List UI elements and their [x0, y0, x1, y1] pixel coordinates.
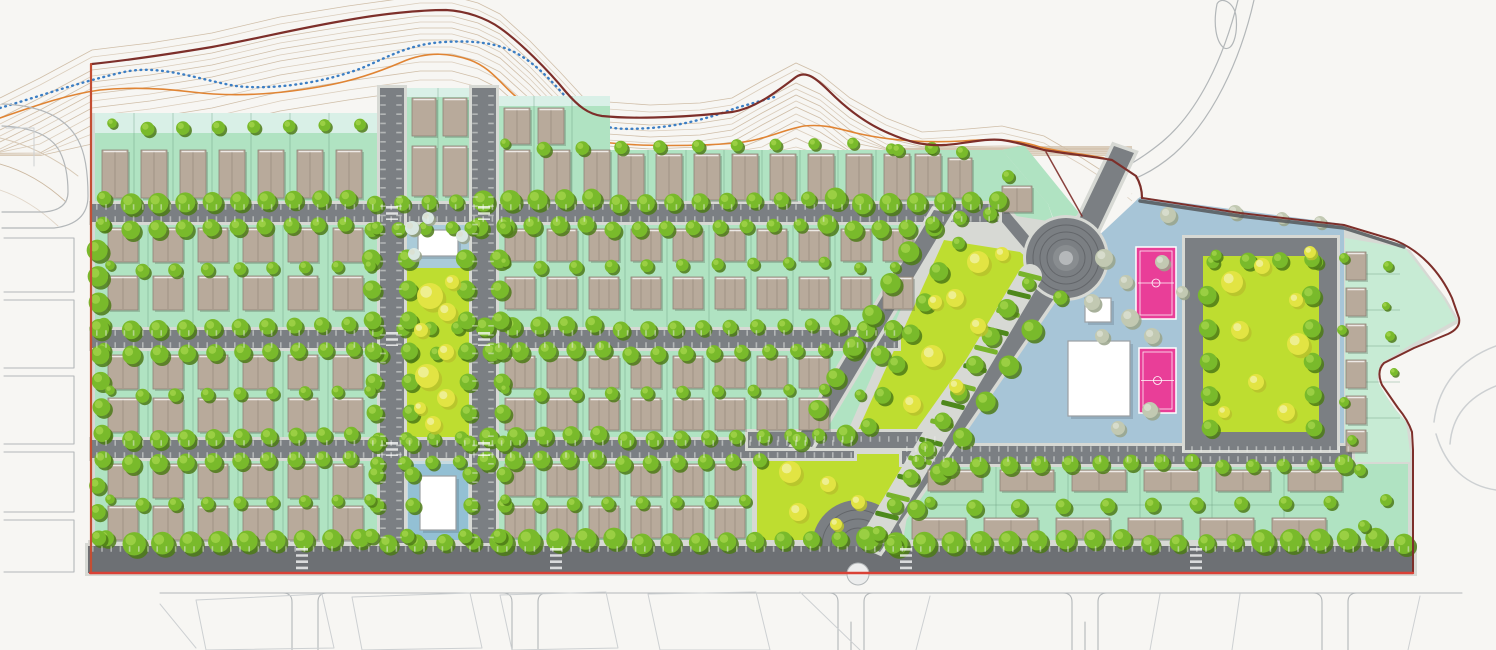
tree-highlight — [970, 254, 980, 264]
tree-highlight — [1204, 422, 1212, 430]
tree-highlight — [889, 499, 896, 506]
tree-highlight — [458, 252, 466, 260]
tree-highlight — [936, 414, 944, 422]
tree-highlight — [571, 262, 577, 268]
tree-highlight — [731, 431, 738, 438]
tree-highlight — [485, 345, 493, 353]
tree-highlight — [1172, 536, 1180, 544]
house-building — [715, 277, 745, 309]
tree-highlight — [92, 506, 99, 513]
tree-highlight — [580, 218, 588, 226]
tree-highlight — [930, 297, 936, 303]
tree-highlight — [285, 220, 292, 227]
tree-highlight — [287, 193, 295, 201]
tree-highlight — [927, 218, 933, 224]
tree-highlight — [1064, 458, 1072, 466]
tree-highlight — [901, 244, 910, 253]
house-building — [547, 398, 577, 430]
tree-highlight — [779, 320, 785, 326]
site-plan-viewport — [0, 0, 1496, 650]
tree-highlight — [607, 223, 614, 230]
tree-highlight — [509, 429, 517, 437]
tree-highlight — [402, 530, 408, 536]
tree-highlight — [235, 431, 243, 439]
tree-highlight — [366, 314, 374, 322]
tree-highlight — [831, 317, 840, 326]
tree-highlight — [152, 322, 160, 330]
tree-highlight — [353, 531, 361, 539]
tree-highlight — [1125, 457, 1132, 464]
tree-highlight — [891, 263, 896, 268]
tree-highlight — [732, 141, 738, 147]
house-building — [799, 277, 829, 309]
tree-highlight — [1178, 287, 1183, 292]
tree-highlight — [803, 193, 810, 200]
tree-highlight — [964, 194, 972, 202]
tree-highlight — [1306, 247, 1311, 252]
tree-highlight — [249, 122, 255, 128]
tree-highlight — [706, 497, 712, 503]
tree-highlight — [786, 430, 792, 436]
tree-highlight — [1004, 171, 1009, 176]
tree-highlight — [206, 321, 214, 329]
tree-highlight — [533, 319, 541, 327]
tree-highlight — [822, 478, 829, 485]
tree-highlight — [675, 432, 682, 439]
tree-highlight — [1147, 499, 1154, 506]
tree-highlight — [207, 431, 215, 439]
tree-highlight — [208, 346, 216, 354]
tree-highlight — [755, 455, 761, 461]
tree-highlight — [170, 390, 176, 396]
tree-highlight — [932, 264, 940, 272]
tree-highlight — [1097, 331, 1103, 337]
tree-highlight — [1391, 369, 1395, 373]
tree-highlight — [1383, 303, 1387, 307]
tree-highlight — [697, 322, 704, 329]
tree-highlight — [234, 321, 242, 329]
house-building — [757, 277, 787, 309]
tree-highlight — [714, 221, 721, 228]
tree-highlight — [263, 430, 270, 437]
tree-highlight — [856, 391, 861, 396]
tree-highlight — [207, 455, 215, 463]
tree-highlight — [1339, 531, 1349, 541]
tree-highlight — [318, 429, 325, 436]
tree-highlight — [535, 389, 541, 395]
tree-highlight — [873, 528, 880, 535]
tree-highlight — [624, 348, 631, 355]
tree-highlight — [958, 147, 963, 152]
tree-highlight — [820, 258, 825, 263]
tree-highlight — [239, 533, 248, 542]
tree-highlight — [91, 295, 100, 304]
tree-highlight — [236, 346, 244, 354]
tree-highlight — [1086, 296, 1093, 303]
tree-highlight — [1220, 407, 1225, 412]
tree-highlight — [365, 283, 373, 291]
tree-highlight — [447, 223, 453, 229]
tree-highlight — [124, 433, 132, 441]
tree-highlight — [1360, 521, 1365, 526]
tree-highlight — [1338, 326, 1343, 331]
tree-highlight — [142, 123, 148, 129]
tree-highlight — [791, 505, 799, 513]
tree-highlight — [300, 263, 306, 269]
tree-highlight — [342, 192, 350, 200]
tree-highlight — [416, 403, 421, 408]
tree-highlight — [203, 264, 209, 270]
tree-highlight — [616, 142, 622, 148]
tree-highlight — [991, 193, 999, 201]
tree-highlight — [1348, 436, 1353, 441]
tree-highlight — [179, 322, 187, 330]
tree-highlight — [785, 385, 790, 390]
tree-highlight — [1229, 536, 1236, 543]
tree-highlight — [587, 318, 595, 326]
tree-highlight — [420, 286, 432, 298]
tree-highlight — [1250, 376, 1257, 383]
tree-highlight — [410, 249, 415, 254]
tree-highlight — [93, 348, 102, 357]
tree-highlight — [264, 345, 271, 352]
tree-highlight — [873, 348, 881, 356]
tree-highlight — [972, 459, 980, 467]
tree-highlight — [1384, 262, 1389, 267]
tree-highlight — [268, 532, 277, 541]
tree-highlight — [924, 348, 934, 358]
tree-highlight — [465, 499, 472, 506]
tree-highlight — [855, 264, 860, 269]
tree-highlight — [1024, 322, 1033, 331]
tree-highlight — [855, 196, 864, 205]
house-building — [443, 146, 467, 196]
tree-highlight — [727, 455, 734, 462]
tree-highlight — [289, 320, 296, 327]
tree-highlight — [1340, 254, 1345, 259]
tree-highlight — [865, 307, 874, 316]
house-building — [757, 229, 787, 261]
tree-highlight — [708, 347, 715, 354]
master-plan-canvas — [0, 0, 1496, 650]
tree-highlight — [905, 471, 912, 478]
tree-highlight — [973, 533, 983, 543]
tree-highlight — [1013, 501, 1020, 508]
tree-highlight — [918, 295, 926, 303]
tree-highlight — [316, 319, 323, 326]
tree-highlight — [368, 376, 376, 384]
tree-highlight — [106, 387, 110, 391]
tree-highlight — [968, 501, 975, 508]
tree-highlight — [123, 196, 132, 205]
tree-highlight — [462, 376, 470, 384]
tree-highlight — [1340, 398, 1345, 403]
tree-highlight — [366, 386, 371, 391]
tree-highlight — [170, 265, 176, 271]
tree-highlight — [748, 194, 755, 201]
house-building — [589, 277, 619, 309]
tree-highlight — [634, 536, 643, 545]
tree-highlight — [568, 499, 574, 505]
tree-highlight — [672, 497, 678, 503]
tree-highlight — [235, 264, 241, 270]
tree-highlight — [666, 196, 674, 204]
tree-highlight — [213, 122, 219, 128]
tree-highlight — [578, 531, 588, 541]
tree-highlight — [883, 275, 892, 284]
tree-highlight — [577, 143, 583, 149]
tree-highlight — [736, 346, 743, 353]
tree-highlight — [494, 314, 502, 322]
tree-highlight — [179, 456, 187, 464]
tree-highlight — [403, 345, 411, 353]
house-building — [589, 356, 619, 388]
tree-highlight — [405, 407, 412, 414]
tree-highlight — [680, 347, 687, 354]
tree-highlight — [1290, 336, 1300, 346]
tree-highlight — [777, 534, 785, 542]
tree-highlight — [501, 140, 505, 144]
tree-highlight — [396, 197, 403, 204]
tree-highlight — [314, 192, 322, 200]
tree-highlight — [460, 530, 466, 536]
tree-highlight — [366, 261, 371, 266]
tree-highlight — [713, 387, 719, 393]
tree-highlight — [771, 140, 776, 145]
tree-highlight — [460, 314, 468, 322]
tree-highlight — [154, 534, 164, 544]
tree-highlight — [466, 223, 472, 229]
house-building — [715, 464, 745, 496]
tree-highlight — [1283, 532, 1293, 542]
tree-highlight — [814, 430, 820, 436]
tree-highlight — [557, 191, 566, 200]
tree-highlight — [97, 218, 103, 224]
tree-highlight — [691, 535, 700, 544]
tree-highlight — [151, 222, 159, 230]
tree-highlight — [458, 231, 463, 236]
tree-highlight — [232, 194, 241, 203]
tree-highlight — [96, 427, 104, 435]
tree-highlight — [108, 120, 112, 124]
tree-highlight — [832, 519, 837, 524]
tree-highlight — [660, 222, 667, 229]
tree-highlight — [655, 142, 661, 148]
house-building — [673, 277, 703, 309]
tree-highlight — [456, 433, 462, 439]
tree-highlight — [1102, 500, 1109, 507]
tree-highlight — [1030, 533, 1039, 542]
tree-highlight — [720, 534, 728, 542]
tree-highlight — [1200, 536, 1207, 543]
tree-highlight — [423, 197, 430, 204]
tree-highlight — [645, 457, 652, 464]
tree-highlight — [464, 468, 471, 475]
tree-highlight — [887, 145, 892, 150]
tree-highlight — [1001, 533, 1010, 542]
tree-highlight — [180, 347, 188, 355]
tree-highlight — [1003, 459, 1011, 467]
tree-highlight — [152, 456, 160, 464]
tree-highlight — [853, 497, 859, 503]
tree-highlight — [806, 320, 812, 326]
tree-highlight — [407, 499, 414, 506]
tree-highlight — [909, 502, 917, 510]
tree-highlight — [549, 531, 559, 541]
tree-highlight — [268, 388, 274, 394]
tree-highlight — [886, 538, 894, 546]
tree-highlight — [366, 530, 372, 536]
tree-highlight — [407, 223, 413, 229]
tree-highlight — [741, 221, 747, 227]
house-building — [631, 398, 661, 430]
tree-highlight — [432, 348, 438, 354]
tree-highlight — [1156, 456, 1163, 463]
tree-highlight — [904, 327, 912, 335]
tree-highlight — [1000, 301, 1008, 309]
tree-highlight — [1143, 537, 1151, 545]
tree-highlight — [937, 194, 946, 203]
tree-highlight — [406, 468, 413, 475]
tree-highlight — [1097, 251, 1105, 259]
tree-highlight — [372, 223, 378, 229]
tree-highlight — [453, 323, 459, 329]
tree-highlight — [1055, 292, 1061, 298]
tree-highlight — [1224, 274, 1234, 284]
tree-highlight — [1279, 405, 1287, 413]
tree-highlight — [348, 343, 355, 350]
tree-highlight — [320, 121, 326, 127]
tree-highlight — [782, 464, 792, 474]
roundabout-island-center — [1059, 251, 1073, 265]
tree-highlight — [401, 283, 409, 291]
tree-highlight — [1217, 461, 1223, 467]
tree-highlight — [284, 121, 290, 127]
tree-highlight — [99, 193, 105, 199]
tree-highlight — [859, 529, 870, 540]
tree-highlight — [639, 196, 647, 204]
tree-highlight — [916, 534, 926, 544]
tree-highlight — [427, 457, 433, 463]
tree-highlight — [1308, 422, 1316, 430]
tree-highlight — [944, 534, 954, 544]
house-building — [631, 277, 661, 309]
tree-highlight — [1201, 321, 1209, 329]
tree-highlight — [752, 321, 758, 327]
tree-highlight — [863, 420, 870, 427]
house-building — [799, 356, 829, 388]
house-building — [673, 398, 703, 430]
tree-highlight — [1291, 295, 1297, 301]
tree-highlight — [1356, 465, 1361, 470]
tree-highlight — [741, 496, 746, 501]
tree-highlight — [874, 222, 882, 230]
tree-highlight — [346, 428, 353, 435]
tree-highlight — [203, 389, 209, 395]
tree-highlight — [859, 323, 867, 331]
tree-highlight — [537, 429, 545, 437]
tree-highlight — [534, 499, 540, 505]
tree-highlight — [137, 499, 143, 505]
tree-highlight — [152, 432, 160, 440]
tree-highlight — [1146, 330, 1153, 337]
tree-highlight — [439, 391, 447, 399]
tree-highlight — [1024, 279, 1030, 285]
tree-highlight — [820, 385, 825, 390]
tree-highlight — [325, 532, 334, 541]
tree-highlight — [463, 407, 470, 414]
house-building — [412, 98, 436, 136]
tree-highlight — [652, 348, 659, 355]
tree-highlight — [784, 258, 789, 263]
tree-highlight — [606, 261, 612, 267]
tree-highlight — [642, 261, 648, 267]
tree-highlight — [1058, 532, 1067, 541]
tree-highlight — [829, 370, 838, 379]
tree-highlight — [882, 195, 891, 204]
tree-highlight — [1274, 254, 1281, 261]
tree-highlight — [178, 222, 186, 230]
tree-highlight — [1281, 498, 1287, 504]
tree-highlight — [839, 427, 848, 436]
tree-highlight — [1304, 288, 1312, 296]
tree-highlight — [290, 430, 297, 437]
tree-highlight — [92, 321, 101, 330]
tree-highlight — [501, 386, 505, 390]
tree-highlight — [493, 283, 501, 291]
tree-highlight — [1254, 532, 1265, 543]
tree-highlight — [954, 238, 960, 244]
tree-highlight — [805, 533, 813, 541]
tree-highlight — [182, 534, 192, 544]
tree-highlight — [1242, 254, 1249, 261]
tree-highlight — [620, 433, 627, 440]
tree-highlight — [1236, 498, 1242, 504]
tree-highlight — [501, 259, 505, 263]
tree-highlight — [260, 193, 268, 201]
tree-highlight — [749, 259, 754, 264]
tree-highlight — [703, 432, 710, 439]
tree-highlight — [178, 195, 187, 204]
lot-back-strip — [496, 96, 610, 106]
tree-highlight — [1386, 332, 1391, 337]
tree-highlight — [721, 195, 728, 202]
house-building — [757, 356, 787, 388]
tree-highlight — [1233, 323, 1241, 331]
tree-highlight — [1382, 495, 1387, 500]
tree-highlight — [1203, 388, 1211, 396]
tree-highlight — [951, 381, 957, 387]
tree-highlight — [124, 323, 132, 331]
tree-highlight — [521, 531, 531, 541]
tree-highlight — [94, 374, 102, 382]
tree-highlight — [1200, 288, 1208, 296]
tree-highlight — [170, 499, 176, 505]
tree-highlight — [1202, 355, 1210, 363]
tree-highlight — [909, 195, 918, 204]
tree-highlight — [827, 190, 837, 200]
tree-highlight — [500, 223, 506, 229]
lot-back-strip — [95, 113, 378, 133]
tree-highlight — [296, 532, 305, 541]
tree-highlight — [997, 249, 1003, 255]
house-building — [1346, 360, 1366, 388]
tree-highlight — [418, 367, 429, 378]
tree-highlight — [748, 534, 756, 542]
tree-highlight — [1325, 497, 1331, 503]
tree-highlight — [834, 533, 841, 540]
tree-highlight — [894, 145, 899, 150]
